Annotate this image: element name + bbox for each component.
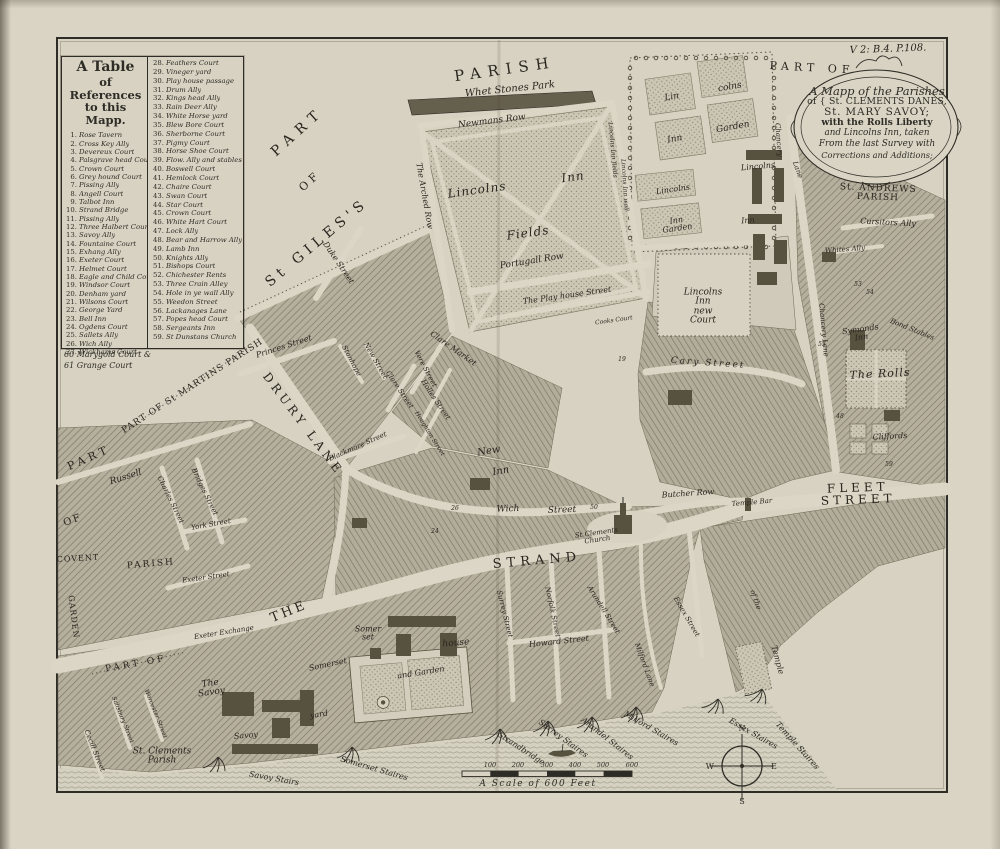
ref-entry-23: 23.Bell Inn (64, 315, 147, 323)
antique-map-sheet: N W E S 100 200 300 400 500 600 A Scale … (0, 0, 1000, 849)
ref-entry-55: 55.Weedon Street (151, 298, 243, 307)
ref-entry-label: Windsor Court (79, 281, 130, 289)
ref-entry-number: 28. (151, 59, 164, 68)
ref-entry-number: 19. (64, 281, 77, 289)
ref-entry-number: 26. (64, 340, 77, 348)
ref-entry-number: 14. (64, 240, 77, 248)
ref-entry-57: 57.Popes head Court (151, 315, 243, 324)
ref-entry-52: 52.Chichester Rents (151, 271, 243, 280)
ref-entry-number: 59. (151, 333, 164, 342)
ref-entry-number: 56. (151, 307, 164, 316)
table-footnote: 60 Marygold Court &61 Grange Court (64, 350, 151, 371)
ref-entry-label: St Dunstans Church (166, 333, 236, 342)
ref-entry-label: Three Crain Alley (166, 280, 228, 289)
ref-entry-13: 13.Savoy Ally (64, 231, 147, 239)
cartouche-line-3: with the Rolls Liberty (797, 118, 957, 129)
ref-entry-2: 2.Cross Key Ally (64, 140, 147, 148)
ref-entry-16: 16.Exeter Court (64, 256, 147, 264)
reference-table: A Tableof Referencesto this Mapp. 1.Rose… (61, 56, 244, 349)
ref-entry-number: 58. (151, 324, 164, 333)
ref-entry-59: 59.St Dunstans Church (151, 333, 243, 342)
ref-entry-11: 11.Pissing Ally (64, 215, 147, 223)
ref-entry-label: Three Halbert Court (79, 223, 147, 231)
ref-entry-37: 37.Pigmy Court (151, 139, 243, 148)
ref-entry-label: Bishops Court (166, 262, 215, 271)
ref-entry-53: 53.Three Crain Alley (151, 280, 243, 289)
ref-entry-5: 5.Crown Court (64, 165, 147, 173)
ref-entry-number: 54. (151, 289, 164, 298)
ref-entry-label: Boswell Court (166, 165, 215, 174)
ref-entry-label: Play house passage (166, 77, 234, 86)
ref-entry-35: 35.Blew Bore Court (151, 121, 243, 130)
ref-entry-15: 15.Exhang Ally (64, 248, 147, 256)
ref-entry-21: 21.Wilsons Court (64, 298, 147, 306)
ref-entry-number: 33. (151, 103, 164, 112)
scale-tick-400: 400 (568, 761, 581, 769)
ref-entry-label: Kings head Ally (166, 94, 220, 103)
ref-entry-30: 30.Play house passage (151, 77, 243, 86)
ref-entry-50: 50.Knights Ally (151, 254, 243, 263)
ref-entry-7: 7.Pissing Ally (64, 181, 147, 189)
ref-entry-number: 15. (64, 248, 77, 256)
ref-entry-label: Talbot Inn (79, 198, 115, 206)
fold-crease (497, 40, 499, 791)
ref-entry-29: 29.Vineger yard (151, 68, 243, 77)
ref-entry-number: 9. (64, 198, 77, 206)
ref-entry-label: Hemlock Court (166, 174, 219, 183)
compass-s: S (739, 797, 744, 806)
ref-entry-number: 23. (64, 315, 77, 323)
ref-entry-label: Fountaine Court (79, 240, 136, 248)
ref-entry-24: 24.Ogdens Court (64, 323, 147, 331)
lincolns-inn-new-court (658, 254, 750, 336)
ref-entry-20: 20.Denham yard (64, 290, 147, 298)
ref-entry-label: Savoy Ally (79, 231, 115, 239)
ref-entry-47: 47.Lock Ally (151, 227, 243, 236)
cartouche-line-4: and Lincolns Inn, taken (797, 128, 957, 139)
ref-entry-number: 38. (151, 147, 164, 156)
compass-w: W (706, 762, 715, 771)
ref-entry-label: Vineger yard (166, 68, 211, 77)
ref-entry-number: 18. (64, 273, 77, 281)
ref-entry-number: 10. (64, 206, 77, 214)
reference-table-column-2: 28.Feathers Court29.Vineger yard30.Play … (148, 57, 243, 348)
ref-entry-number: 41. (151, 174, 164, 183)
ref-entry-number: 35. (151, 121, 164, 130)
cartouche-line-6: Corrections and Additions; (797, 150, 957, 161)
ref-entry-number: 16. (64, 256, 77, 264)
ref-entry-label: Chaire Court (166, 183, 212, 192)
ref-entry-number: 40. (151, 165, 164, 174)
ref-entry-number: 47. (151, 227, 164, 236)
ref-entry-number: 30. (151, 77, 164, 86)
ref-entry-8: 8.Angell Court (64, 190, 147, 198)
ref-entry-10: 10.Strand Bridge (64, 206, 147, 214)
ref-entry-41: 41.Hemlock Court (151, 174, 243, 183)
ref-entry-label: Chichester Rents (166, 271, 226, 280)
ref-entry-number: 49. (151, 245, 164, 254)
ref-entry-number: 34. (151, 112, 164, 121)
ref-entry-49: 49.Lamb Inn (151, 245, 243, 254)
ref-entry-label: Horse Shoe Court (166, 147, 229, 156)
ref-title-line: to this Mapp. (64, 101, 147, 127)
ref-title-line: of References (64, 76, 147, 102)
ref-entry-3: 3.Devereux Court (64, 148, 147, 156)
ref-entry-6: 6.Grey hound Court (64, 173, 147, 181)
ref-entry-label: Crown Court (166, 209, 211, 218)
ref-entry-label: Denham yard (79, 290, 126, 298)
ref-entry-number: 57. (151, 315, 164, 324)
ref-entry-label: Bear and Harrow Ally (166, 236, 242, 245)
ref-entry-9: 9.Talbot Inn (64, 198, 147, 206)
ref-entry-label: Swan Court (166, 192, 207, 201)
ref-entry-46: 46.White Hart Court (151, 218, 243, 227)
ref-entry-31: 31.Drum Ally (151, 86, 243, 95)
ref-entry-43: 43.Swan Court (151, 192, 243, 201)
ref-entry-number: 36. (151, 130, 164, 139)
ref-entry-label: Crown Court (79, 165, 124, 173)
scale-tick-100: 100 (484, 761, 496, 769)
ref-entry-label: Helmet Court (79, 265, 127, 273)
ref-entry-label: White Hart Court (166, 218, 227, 227)
ref-entry-33: 33.Rain Deer Ally (151, 103, 243, 112)
ref-entry-54: 54.Hole in ye wall Ally (151, 289, 243, 298)
ref-entry-label: Grey hound Court (79, 173, 142, 181)
ref-entry-number: 2. (64, 140, 77, 148)
ref-entry-number: 7. (64, 181, 77, 189)
ref-entry-label: Lackanages Lane (166, 307, 227, 316)
ref-entry-18: 18.Eagle and Child Court (64, 273, 147, 281)
ref-entry-label: Sergeants Inn (166, 324, 215, 333)
ref-entry-number: 46. (151, 218, 164, 227)
ref-entry-48: 48.Bear and Harrow Ally (151, 236, 243, 245)
ref-entry-label: Pigmy Court (166, 139, 210, 148)
ref-entry-label: Pissing Ally (79, 215, 119, 223)
ref-entry-label: Exeter Court (79, 256, 124, 264)
ref-entry-label: Rain Deer Ally (166, 103, 217, 112)
compass-e: E (771, 762, 777, 771)
ref-entry-39: 39.Flow. Ally and stables (151, 156, 243, 165)
ref-entry-label: Devereux Court (79, 148, 134, 156)
ref-entry-label: Wilsons Court (79, 298, 128, 306)
ref-entry-label: Flow. Ally and stables (166, 156, 242, 165)
cartouche-line-5: From the last Survey with (797, 139, 957, 150)
ref-entry-label: Feathers Court (166, 59, 219, 68)
ref-entry-number: 24. (64, 323, 77, 331)
ref-entry-25: 25.Sallets Ally (64, 331, 147, 339)
ref-entry-38: 38.Horse Shoe Court (151, 147, 243, 156)
ref-entry-number: 4. (64, 156, 77, 164)
ref-entry-number: 11. (64, 215, 77, 223)
ref-entry-28: 28.Feathers Court (151, 59, 243, 68)
ref-entry-1: 1.Rose Tavern (64, 131, 147, 139)
ref-entry-label: Hole in ye wall Ally (166, 289, 234, 298)
ref-entry-number: 53. (151, 280, 164, 289)
ref-entry-17: 17.Helmet Court (64, 265, 147, 273)
footnote-line: 60 Marygold Court & (64, 350, 151, 361)
ref-entry-label: Angell Court (79, 190, 123, 198)
ref-entry-label: George Yard (79, 306, 123, 314)
ref-entry-label: Popes head Court (166, 315, 228, 324)
ref-entry-56: 56.Lackanages Lane (151, 307, 243, 316)
ref-entry-42: 42.Chaire Court (151, 183, 243, 192)
scale-tick-200: 200 (511, 761, 524, 769)
ref-entry-number: 55. (151, 298, 164, 307)
ref-entry-number: 6. (64, 173, 77, 181)
compass-n: N (739, 724, 746, 733)
ref-entry-4: 4.Palsgrave head Court (64, 156, 147, 164)
ref-entry-number: 12. (64, 223, 77, 231)
ref-entry-number: 48. (151, 236, 164, 245)
reference-table-title: A Tableof Referencesto this Mapp. (64, 60, 147, 127)
scale-tick-600: 600 (626, 761, 638, 769)
ref-col2-rows: 28.Feathers Court29.Vineger yard30.Play … (151, 59, 243, 342)
ref-entry-label: Pissing Ally (79, 181, 119, 189)
ref-entry-number: 21. (64, 298, 77, 306)
ref-entry-number: 50. (151, 254, 164, 263)
ref-entry-number: 39. (151, 156, 164, 165)
ref-entry-label: Lamb Inn (166, 245, 199, 254)
ref-entry-number: 51. (151, 262, 164, 271)
ref-entry-label: Wich Ally (79, 340, 112, 348)
ref-entry-number: 44. (151, 201, 164, 210)
ref-entry-label: Bell Inn (79, 315, 106, 323)
ref-entry-12: 12.Three Halbert Court (64, 223, 147, 231)
reference-table-column-1: A Tableof Referencesto this Mapp. 1.Rose… (62, 57, 148, 348)
ref-entry-number: 37. (151, 139, 164, 148)
cartouche-line-0: A Mapp of the Parishes (797, 86, 957, 97)
ref-entry-label: Ogdens Court (79, 323, 128, 331)
ref-entry-label: Cross Key Ally (79, 140, 129, 148)
ref-entry-label: Drum Ally (166, 86, 201, 95)
ref-entry-label: Sherborne Court (166, 130, 225, 139)
ref-entry-number: 17. (64, 265, 77, 273)
ref-entry-label: Blew Bore Court (166, 121, 224, 130)
ref-entry-number: 52. (151, 271, 164, 280)
somerset-garden (349, 647, 472, 723)
ref-entry-number: 5. (64, 165, 77, 173)
ref-entry-label: White Horse yard (166, 112, 228, 121)
ref-entry-number: 8. (64, 190, 77, 198)
ref-title-line: A Table (64, 60, 147, 76)
ref-entry-36: 36.Sherborne Court (151, 130, 243, 139)
ref-entry-label: Palsgrave head Court (79, 156, 147, 164)
ref-entry-label: Star Court (166, 201, 203, 210)
ref-entry-label: Weedon Street (166, 298, 218, 307)
footnote-line: 61 Grange Court (64, 361, 151, 372)
ref-entry-40: 40.Boswell Court (151, 165, 243, 174)
ref-entry-label: Exhang Ally (79, 248, 121, 256)
ref-entry-label: Lock Ally (166, 227, 198, 236)
title-cartouche: A Mapp of the Parishesof { St. CLEMENTS … (797, 86, 957, 160)
ref-entry-14: 14.Fountaine Court (64, 240, 147, 248)
ref-entry-26: 26.Wich Ally (64, 340, 147, 348)
ref-entry-44: 44.Star Court (151, 201, 243, 210)
ref-entry-58: 58.Sergeants Inn (151, 324, 243, 333)
ref-entry-number: 29. (151, 68, 164, 77)
ref-entry-22: 22.George Yard (64, 306, 147, 314)
ref-entry-label: Sallets Ally (79, 331, 118, 339)
ref-entry-number: 20. (64, 290, 77, 298)
ref-entry-number: 3. (64, 148, 77, 156)
ref-entry-number: 32. (151, 94, 164, 103)
ref-entry-45: 45.Crown Court (151, 209, 243, 218)
ref-entry-51: 51.Bishops Court (151, 262, 243, 271)
ref-entry-number: 13. (64, 231, 77, 239)
ref-entry-label: Eagle and Child Court (79, 273, 147, 281)
ref-entry-label: Rose Tavern (79, 131, 122, 139)
ref-col1-rows: 1.Rose Tavern2.Cross Key Ally3.Devereux … (64, 131, 147, 356)
ref-entry-number: 22. (64, 306, 77, 314)
ref-entry-32: 32.Kings head Ally (151, 94, 243, 103)
ref-entry-label: Knights Ally (166, 254, 208, 263)
ref-entry-label: Strand Bridge (79, 206, 128, 214)
ref-entry-number: 25. (64, 331, 77, 339)
ref-entry-number: 1. (64, 131, 77, 139)
ref-entry-number: 42. (151, 183, 164, 192)
ref-entry-34: 34.White Horse yard (151, 112, 243, 121)
ref-entry-number: 31. (151, 86, 164, 95)
ref-entry-number: 43. (151, 192, 164, 201)
ref-entry-number: 45. (151, 209, 164, 218)
scale-tick-300: 300 (541, 761, 553, 769)
ref-entry-19: 19.Windsor Court (64, 281, 147, 289)
scale-tick-500: 500 (597, 761, 609, 769)
